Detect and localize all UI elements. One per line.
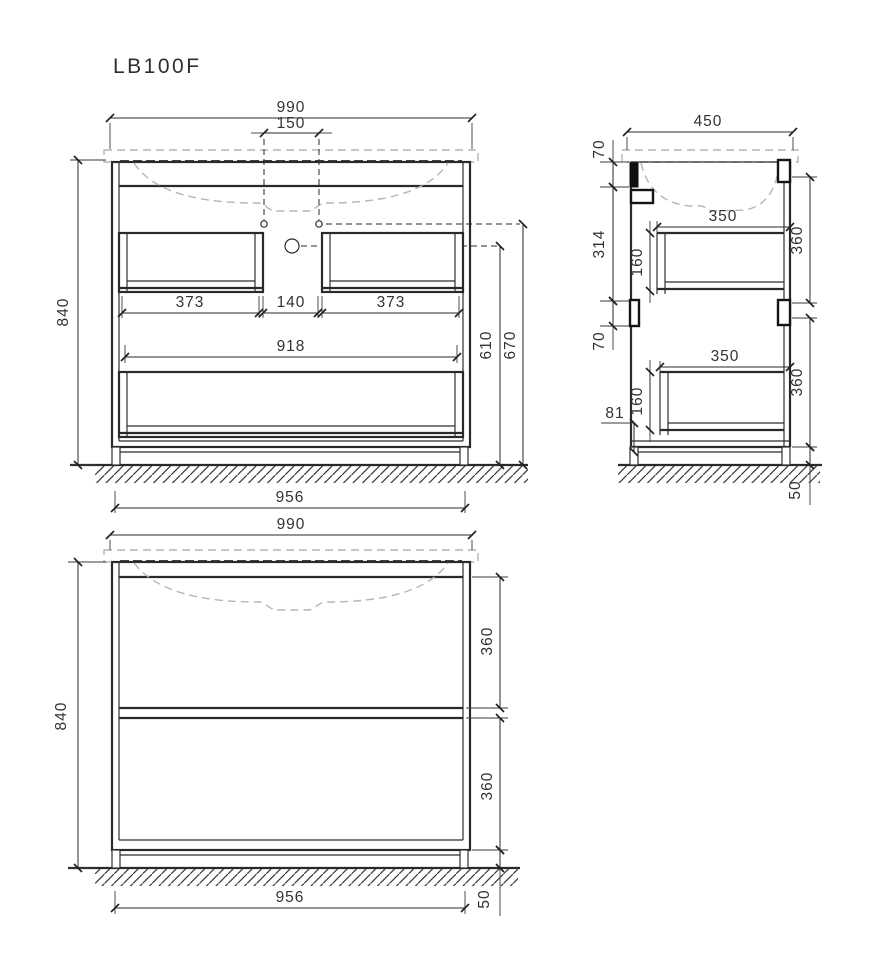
faucet-hole-left [261, 221, 267, 227]
dim-drain-610: 610 [478, 246, 500, 465]
side-upper-drawer [657, 233, 784, 294]
front-runner-top [631, 190, 653, 203]
dim-text-350-top: 350 [709, 208, 738, 225]
back-bracket-mid [778, 300, 790, 325]
dim-base-956: 956 [115, 489, 465, 513]
dim-faucet-670: 670 [502, 224, 523, 465]
dim-height-840: 840 [55, 160, 106, 465]
back-bracket-top [778, 160, 790, 182]
faucet-hole-right [316, 221, 322, 227]
side-back-leg [782, 447, 790, 465]
closed-dim-base-956: 956 [115, 889, 465, 914]
dim-left-brackets: 70 314 70 [591, 139, 629, 350]
dim-text-918: 918 [277, 338, 306, 355]
right-leg [460, 447, 468, 465]
closed-dim-height-840: 840 [53, 562, 106, 868]
drain-hole [285, 239, 299, 253]
dim-text-373-right: 373 [377, 294, 406, 311]
technical-drawing-sheet: LB100F [0, 0, 884, 970]
dim-text-610: 610 [478, 331, 495, 360]
closed-dim-text-990: 990 [277, 516, 306, 533]
side-sink-outline [641, 163, 779, 211]
closed-ground-hatch [68, 868, 520, 886]
dim-text-140: 140 [277, 294, 306, 311]
dim-lower-drawer-350: 350 [660, 348, 790, 372]
dim-text-350-bottom: 350 [711, 348, 740, 365]
model-title: LB100F [113, 55, 202, 78]
closed-dim-text-360-bottom: 360 [479, 772, 496, 801]
dim-text-81: 81 [605, 405, 624, 422]
upper-drawer-left [119, 233, 263, 292]
closed-right-leg [460, 850, 468, 868]
front-bracket-mid [630, 300, 639, 326]
lower-drawer [119, 372, 463, 437]
dim-text-840: 840 [55, 298, 72, 327]
side-lower-drawer [660, 372, 784, 435]
dim-text-956: 956 [276, 489, 305, 506]
dim-text-990: 990 [277, 99, 306, 116]
dim-text-50: 50 [787, 480, 804, 499]
front-open-view: 990 150 840 373 140 373 [55, 99, 528, 513]
closed-dim-text-956: 956 [276, 889, 305, 906]
closed-dim-text-50: 50 [476, 889, 493, 908]
dim-text-150: 150 [277, 115, 306, 132]
dim-text-160-top: 160 [629, 248, 646, 277]
closed-left-leg [112, 850, 120, 868]
dim-upper-drawer-350: 350 [657, 208, 790, 233]
front-bracket-top [630, 163, 638, 187]
dim-text-360-top: 360 [789, 226, 806, 255]
left-leg [112, 447, 120, 465]
dim-depth-450: 450 [627, 113, 793, 150]
dim-text-360-bottom: 360 [789, 368, 806, 397]
dim-text-670: 670 [502, 331, 519, 360]
side-ground-hatch [618, 465, 822, 483]
ground-hatch [70, 465, 528, 483]
dim-text-450: 450 [694, 113, 723, 130]
drawing-canvas: LB100F [0, 0, 884, 970]
dim-lower-drawer-160: 160 [629, 360, 650, 442]
side-hardware [630, 160, 790, 326]
side-countertop [622, 150, 798, 162]
dim-text-314: 314 [591, 230, 608, 259]
closed-dim-fronts: 360 360 [466, 577, 508, 850]
dim-text-70-bottom: 70 [591, 331, 608, 350]
upper-drawer-right [322, 233, 463, 292]
closed-dim-text-360-top: 360 [479, 627, 496, 656]
dim-text-373-left: 373 [176, 294, 205, 311]
dim-text-70-top: 70 [591, 139, 608, 158]
closed-dim-text-840: 840 [53, 702, 70, 731]
front-closed-view: 990 840 360 360 956 50 [53, 516, 520, 916]
closed-dim-width-990: 990 [110, 516, 472, 550]
dim-right-fronts: 360 360 [789, 177, 817, 447]
dim-upper-drawer-160: 160 [629, 221, 650, 303]
dim-text-160-bottom: 160 [629, 387, 646, 416]
closed-cabinet-body [112, 562, 470, 868]
side-view: 450 70 314 70 350 160 [591, 113, 822, 505]
